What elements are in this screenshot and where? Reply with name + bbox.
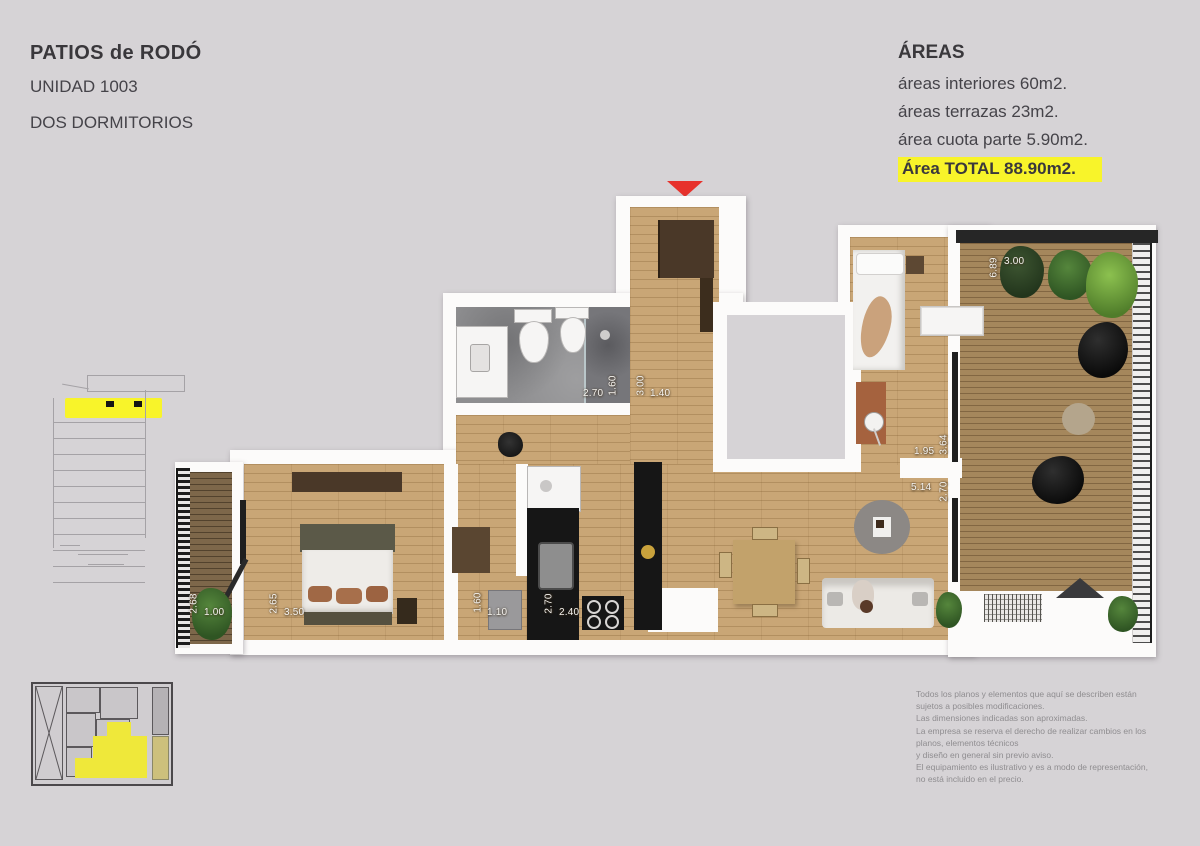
x-cross-icon [36,687,62,779]
sofa-pillow [827,592,843,606]
section-floor-line [53,534,145,535]
section-floor-line [53,550,145,551]
keyplan-shaft [35,686,63,780]
section-base-step [78,554,128,555]
entry-closet [658,220,714,278]
section-base-step [60,545,80,546]
section-floor-line [53,486,145,487]
dim-laundry-width: 1.10 [487,607,507,618]
dim-bedroom1-depth: 2.65 [269,593,280,613]
bedroom1-nightstand [397,598,417,624]
person-on-sofa-head [860,600,873,613]
terrace-corner-plant [1108,596,1138,632]
section-roof-step [62,384,89,390]
section-base-step [88,564,124,565]
bed1-canopy [300,524,395,552]
stove-burner-icon [587,615,601,629]
section-floor-line [53,422,145,423]
disclaimer-line: planos, elementos técnicos [916,737,1200,749]
keyplan-unit-highlight-top [107,722,131,738]
dining-table [733,540,795,604]
disclaimer-line: no está incluido en el precio. [916,773,1200,785]
disclaimer-line: sujetos a posibles modificaciones. [916,700,1200,712]
disclaimer-line: Todos los planos y elementos que aquí se… [916,688,1200,700]
dim-bath-depth: 1.60 [608,375,619,395]
section-floor-line [53,470,145,471]
island-sink-icon [641,545,655,559]
bedroom2-nightstand [906,256,924,274]
dim-bath-width: 2.70 [583,388,603,399]
keyplan-strip [152,687,169,735]
keyplan-room [66,687,100,713]
keyplan-unit-highlight [93,736,147,778]
section-floor-line [53,454,145,455]
disclaimer: Todos los planos y elementos que aquí se… [916,688,1200,786]
dim-terrace-width: 3.00 [1004,256,1024,267]
kitchen-sink [538,542,574,590]
section-floor-line [53,502,145,503]
dim-living-length: 5.14 [911,482,931,493]
stove-burner-icon [605,600,619,614]
section-dot [106,401,114,407]
section-left-edge [53,398,54,548]
disclaimer-line: y diseño en general sin previo aviso. [916,749,1200,761]
dim-laundry-depth: 1.60 [473,592,484,612]
coffee-table-deco [876,520,884,528]
dim-bedroom2-length: 3.64 [939,434,950,454]
keyplan-unit-highlight-arm [75,758,95,778]
keyplan-unit-terrace [152,736,169,780]
dim-entry-length: 3.00 [636,375,647,395]
bed1-body [302,550,393,614]
dim-entry-width: 1.40 [650,388,670,399]
dim-bedroom2-width: 1.95 [914,446,934,457]
void-patio [727,315,845,459]
keyplan-room [100,687,138,719]
dim-kitchen-depth: 2.70 [544,593,555,613]
laundry-cabinet [452,527,490,573]
bed1-bench [304,612,392,625]
stove-burner-icon [605,615,619,629]
sofa-pillow [912,592,928,606]
entrance-arrow-icon [667,181,703,197]
kitchen-fridge [527,466,581,512]
terrace-railing [1132,243,1152,643]
section-roof-box [87,375,185,392]
bedroom1-dresser [292,472,402,492]
ac-grille [984,594,1042,622]
terrace-ottoman [1062,403,1095,435]
bed1-pillow [336,588,362,604]
section-floor-line [53,438,145,439]
terrace-awning [956,230,1158,243]
balcony-door-frame [240,500,246,564]
section-floor-line [53,566,145,567]
dim-bedroom1-width: 3.50 [284,607,304,618]
terrace-plant [1086,252,1138,318]
key-plan [31,682,173,786]
section-floor-line [53,582,145,583]
section-dot [134,401,142,407]
terrace-plant [1000,246,1044,298]
living-plant [936,592,962,628]
terrace-door-frame [952,352,958,462]
kitchen-fridge-handle-icon [540,480,552,492]
keyplan-room [66,713,96,747]
section-right-edge [145,390,146,538]
terrace-door-frame [952,498,958,582]
disclaimer-line: La empresa se reserva el derecho de real… [916,725,1200,737]
dim-terrace-length: 6.89 [989,257,1000,277]
dim-living-width: 2.70 [939,481,950,501]
section-floor-line [53,518,145,519]
dim-kitchen-width: 2.40 [559,607,579,618]
bed2-pillow [856,253,904,275]
building-section-diagram [0,0,220,640]
disclaimer-line: El equipamiento es ilustrativo y es a mo… [916,761,1200,773]
floorplan-sheet: PATIOS de RODÓ UNIDAD 1003 DOS DORMITORI… [0,0,1200,846]
disclaimer-line: Las dimensiones indicadas son aproximada… [916,712,1200,724]
stove-burner-icon [587,600,601,614]
dining-chair [797,558,810,584]
dining-chair [752,604,778,617]
dining-chair [752,527,778,540]
shower-head-icon [600,330,610,340]
bedroom2-closet [920,306,984,336]
dining-chair [719,552,732,578]
bed1-pillow [366,586,388,602]
bath-vanity-sink-icon [470,344,490,372]
bed1-pillow [308,586,332,602]
desk-chair [498,432,523,457]
entry-closet-side [700,278,713,332]
